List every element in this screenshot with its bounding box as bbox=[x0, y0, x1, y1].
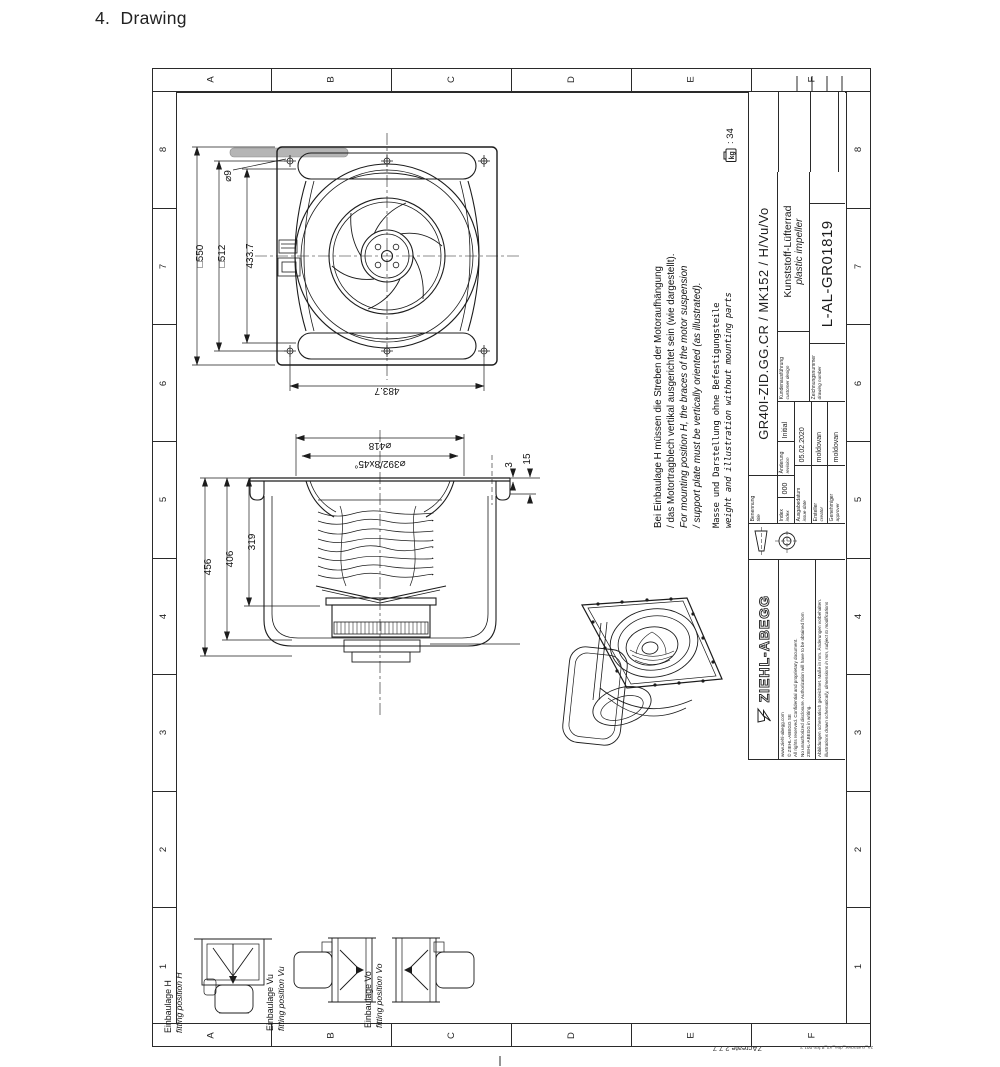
revision-table: Indexindex 000 Änderungrevision Initial … bbox=[778, 401, 845, 523]
schematic-note-en: illustrations drawn schematically, dimen… bbox=[824, 562, 831, 757]
grid-number: 8 bbox=[853, 147, 864, 152]
part-name: GR40I-ZID.GG.CR / MK152 / H/Vu/Vo bbox=[749, 172, 777, 475]
grid-letter: C bbox=[446, 1032, 457, 1039]
fineprint-rights: All rights reserved. Confidential and pr… bbox=[793, 562, 800, 757]
creator-value: moldovan bbox=[812, 402, 828, 465]
revision-row-index: Indexindex 000 Änderungrevision Initial bbox=[778, 402, 795, 523]
grid-number: 6 bbox=[158, 380, 169, 385]
fitting-vu-en: fitting position Vu bbox=[276, 927, 287, 1031]
creator-label-en: creator bbox=[819, 468, 825, 521]
grid-number: 3 bbox=[158, 730, 169, 735]
grid-number: 8 bbox=[158, 147, 169, 152]
title-block: ZIEHL-ABEGG www.ziehl-abegg.com © ZIEHL-… bbox=[748, 92, 845, 760]
design-label-cell: Kundenausführung customer design bbox=[778, 331, 809, 401]
issue-date-label-en: issue date bbox=[802, 468, 808, 521]
fineprint-writing: ZIEHL-ABEGG in writing. bbox=[806, 562, 813, 757]
grid-letter: E bbox=[686, 1032, 697, 1038]
drawing-number: L-AL-GR01819 bbox=[810, 203, 845, 343]
product-name-en: plastic impeller bbox=[794, 219, 805, 285]
fitting-h-de: Einbaulage H bbox=[163, 933, 174, 1033]
grid-number: 7 bbox=[853, 264, 864, 269]
design-label-en: customer design bbox=[785, 334, 791, 399]
footer-form-reference: za_customer_drw_a3_8 frm 001 2 bbox=[783, 1044, 873, 1053]
grid-number: 3 bbox=[853, 730, 864, 735]
approver-value: moldovan bbox=[828, 402, 845, 465]
ziehl-abegg-logo-icon bbox=[755, 706, 773, 724]
grid-number: 1 bbox=[853, 964, 864, 969]
approver-label-en: approver bbox=[835, 468, 841, 521]
grid-numbers-left: 8 7 6 5 4 3 2 1 bbox=[152, 92, 176, 1024]
fitting-vo-en: fitting position Vo bbox=[374, 924, 385, 1028]
ziehl-abegg-logo-text: ZIEHL-ABEGG bbox=[756, 595, 772, 702]
fitting-label-vo: Einbaulage Vo fitting position Vo bbox=[363, 924, 393, 1028]
revision-row-date: Ausgabedatumissue date 05.02.2020 bbox=[795, 402, 812, 523]
grid-letter: A bbox=[206, 76, 217, 82]
copyright-fineprint: www.ziehl-abegg.com © ZIEHL-ABEGG SE All… bbox=[779, 560, 816, 759]
fineprint-url: www.ziehl-abegg.com bbox=[780, 562, 787, 757]
part-name-row: Benennung title GR40I-ZID.GG.CR / MK152 … bbox=[749, 172, 778, 523]
product-name-de: Kunststoff-Lüfterrad bbox=[782, 206, 794, 298]
note-de-line1: Bei Einbaulage H müssen die Streben der … bbox=[652, 162, 665, 528]
fitting-label-vu: Einbaulage Vu fitting position Vu bbox=[265, 927, 295, 1031]
grid-letter: B bbox=[326, 1032, 337, 1038]
schematic-note: Abbildungen schematisch gezeichnet. Maße… bbox=[816, 560, 845, 759]
grid-letter: A bbox=[206, 1032, 217, 1038]
note-en-line2: / support plate must be vertically orien… bbox=[691, 162, 704, 528]
product-row: Kundenausführung customer design Kunstst… bbox=[778, 172, 810, 401]
grid-number: 5 bbox=[158, 497, 169, 502]
projection-symbol-cell bbox=[749, 523, 845, 559]
weight-icon: kg bbox=[722, 146, 738, 164]
grid-number: 2 bbox=[158, 847, 169, 852]
fitting-vo-de: Einbaulage Vo bbox=[363, 924, 374, 1028]
product-name: Kunststoff-Lüfterrad plastic impeller bbox=[778, 172, 809, 331]
mounting-notes: Bei Einbaulage H müssen die Streben der … bbox=[652, 162, 748, 528]
note-mass-de: Masse und Darstellung ohne Befestigungst… bbox=[711, 162, 723, 528]
weight-unit: kg bbox=[729, 151, 736, 159]
title-block-main: Benennung title GR40I-ZID.GG.CR / MK152 … bbox=[749, 172, 845, 523]
issue-date-value: 05.02.2020 bbox=[795, 402, 811, 465]
drawing-number-label-en: drawing number bbox=[817, 346, 823, 399]
grid-number: 2 bbox=[853, 847, 864, 852]
grid-letters-bottom: A B C D E F bbox=[152, 1023, 871, 1047]
revision-value: Initial bbox=[778, 402, 794, 441]
fitting-h-en: fitting position H bbox=[174, 933, 185, 1033]
note-mass-en: weight and illustration without mounting… bbox=[723, 162, 735, 528]
grid-number: 4 bbox=[853, 614, 864, 619]
grid-letter: E bbox=[686, 76, 697, 82]
title-block-empty-cells bbox=[749, 92, 845, 172]
schematic-note-de: Abbildungen schematisch gezeichnet. Maße… bbox=[817, 562, 824, 757]
title-label: title bbox=[756, 478, 762, 521]
grid-letter: C bbox=[446, 76, 457, 83]
index-value: 000 bbox=[778, 475, 794, 497]
fitting-label-h: Einbaulage H fitting position H bbox=[163, 933, 193, 1033]
drawing-number-label-cell: Zeichnungsnummer drawing number bbox=[810, 343, 845, 401]
grid-numbers-right: 8 7 6 5 4 3 2 1 bbox=[847, 92, 871, 1024]
grid-number: 7 bbox=[158, 264, 169, 269]
grid-letter: D bbox=[566, 1032, 577, 1039]
grid-number: 6 bbox=[853, 380, 864, 385]
grid-letter: D bbox=[566, 76, 577, 83]
fitting-vu-de: Einbaulage Vu bbox=[265, 927, 276, 1031]
fineprint-disclosure: No unauthorized disclosure. Authorizatio… bbox=[800, 562, 807, 757]
grid-letter: F bbox=[806, 77, 817, 83]
grid-number: 4 bbox=[158, 614, 169, 619]
fineprint-company: © ZIEHL-ABEGG SE bbox=[787, 562, 794, 757]
grid-letter: F bbox=[806, 1033, 817, 1039]
benennung-label-cell: Benennung title bbox=[749, 475, 777, 523]
title-block-branding: ZIEHL-ABEGG www.ziehl-abegg.com © ZIEHL-… bbox=[749, 559, 845, 759]
drawing-number-row: Zeichnungsnummer drawing number L-AL-GR0… bbox=[810, 172, 845, 401]
index-label-en: index bbox=[785, 500, 791, 521]
note-de-line2: / das Motortragblech vertikal ausgericht… bbox=[665, 162, 678, 528]
weight-block: kg : 34 bbox=[714, 112, 746, 164]
weight-value: : 34 bbox=[725, 128, 736, 144]
grid-number: 5 bbox=[853, 497, 864, 502]
revision-row-creator: Erstellercreator moldovan bbox=[812, 402, 829, 523]
logo-row: ZIEHL-ABEGG bbox=[749, 560, 779, 759]
revision-label-en: revision bbox=[785, 444, 791, 473]
footer-app-version: ZAcreate 2.7.7 bbox=[650, 1044, 762, 1056]
revision-row-approver: Genehmigerapprover moldovan bbox=[828, 402, 845, 523]
note-en-line1: For mounting position H, the braces of t… bbox=[678, 162, 691, 528]
grid-letter: B bbox=[326, 76, 337, 82]
grid-letters-top: A B C D E F bbox=[152, 68, 871, 92]
first-angle-projection-icon bbox=[749, 523, 809, 559]
